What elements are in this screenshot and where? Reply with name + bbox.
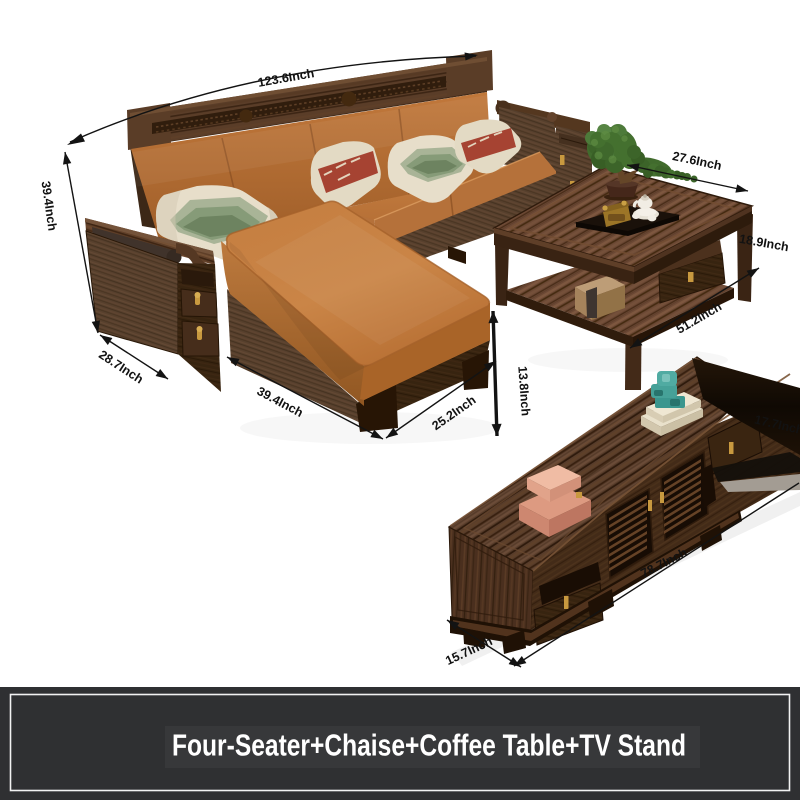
svg-text:27.6Inch: 27.6Inch [671, 149, 723, 173]
svg-text:28.7Inch: 28.7Inch [96, 348, 146, 387]
svg-text:39.4Inch: 39.4Inch [39, 180, 60, 231]
svg-text:Four-Seater+Chaise+Coffee Tabl: Four-Seater+Chaise+Coffee Table+TV Stand [172, 728, 686, 763]
svg-text:13.8Inch: 13.8Inch [515, 366, 532, 417]
